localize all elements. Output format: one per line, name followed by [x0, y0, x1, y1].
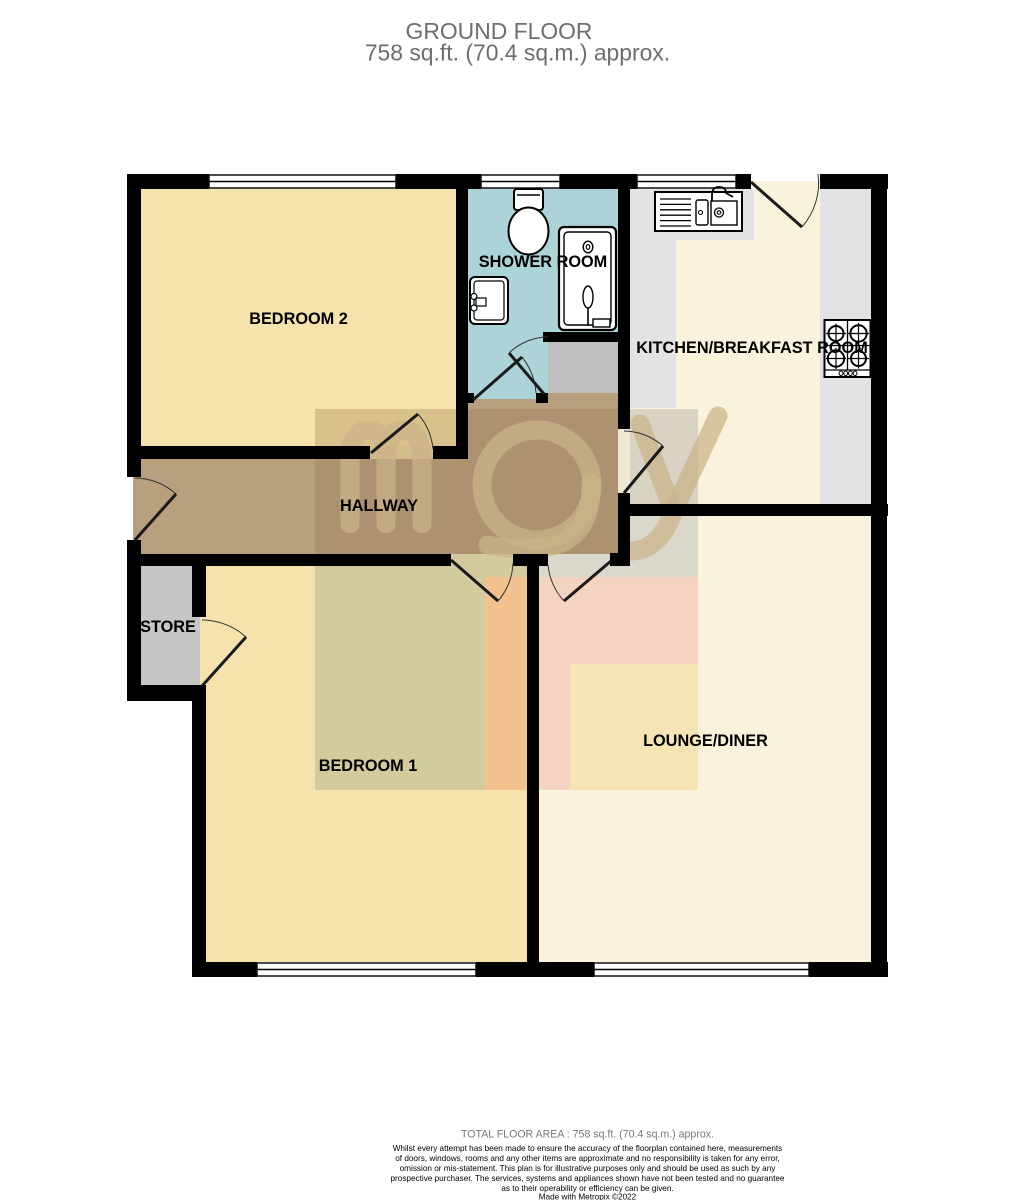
svg-text:Whilst every attempt has been: Whilst every attempt has been made to en… — [393, 1144, 783, 1153]
svg-text:TOTAL FLOOR AREA : 758 sq.ft.: TOTAL FLOOR AREA : 758 sq.ft. (70.4 sq.m… — [461, 1129, 714, 1141]
svg-text:BEDROOM 2: BEDROOM 2 — [249, 310, 348, 328]
svg-text:of doors, windows, rooms and a: of doors, windows, rooms and any other i… — [395, 1154, 780, 1163]
svg-text:prospective purchaser. The ser: prospective purchaser. The services, sys… — [390, 1174, 784, 1183]
svg-text:LOUNGE/DINER: LOUNGE/DINER — [643, 732, 768, 750]
svg-text:KITCHEN/BREAKFAST ROOM: KITCHEN/BREAKFAST ROOM — [636, 339, 868, 357]
svg-text:omission or mis-statement. Thi: omission or mis-statement. This plan is … — [400, 1164, 777, 1173]
svg-text:SHOWER ROOM: SHOWER ROOM — [479, 253, 607, 271]
svg-text:STORE: STORE — [140, 618, 196, 636]
svg-text:758 sq.ft. (70.4 sq.m.) approx: 758 sq.ft. (70.4 sq.m.) approx. — [365, 40, 670, 66]
svg-text:BEDROOM 1: BEDROOM 1 — [319, 757, 418, 775]
svg-text:Made with Metropix ©2022: Made with Metropix ©2022 — [539, 1193, 637, 1200]
svg-text:HALLWAY: HALLWAY — [340, 497, 418, 515]
